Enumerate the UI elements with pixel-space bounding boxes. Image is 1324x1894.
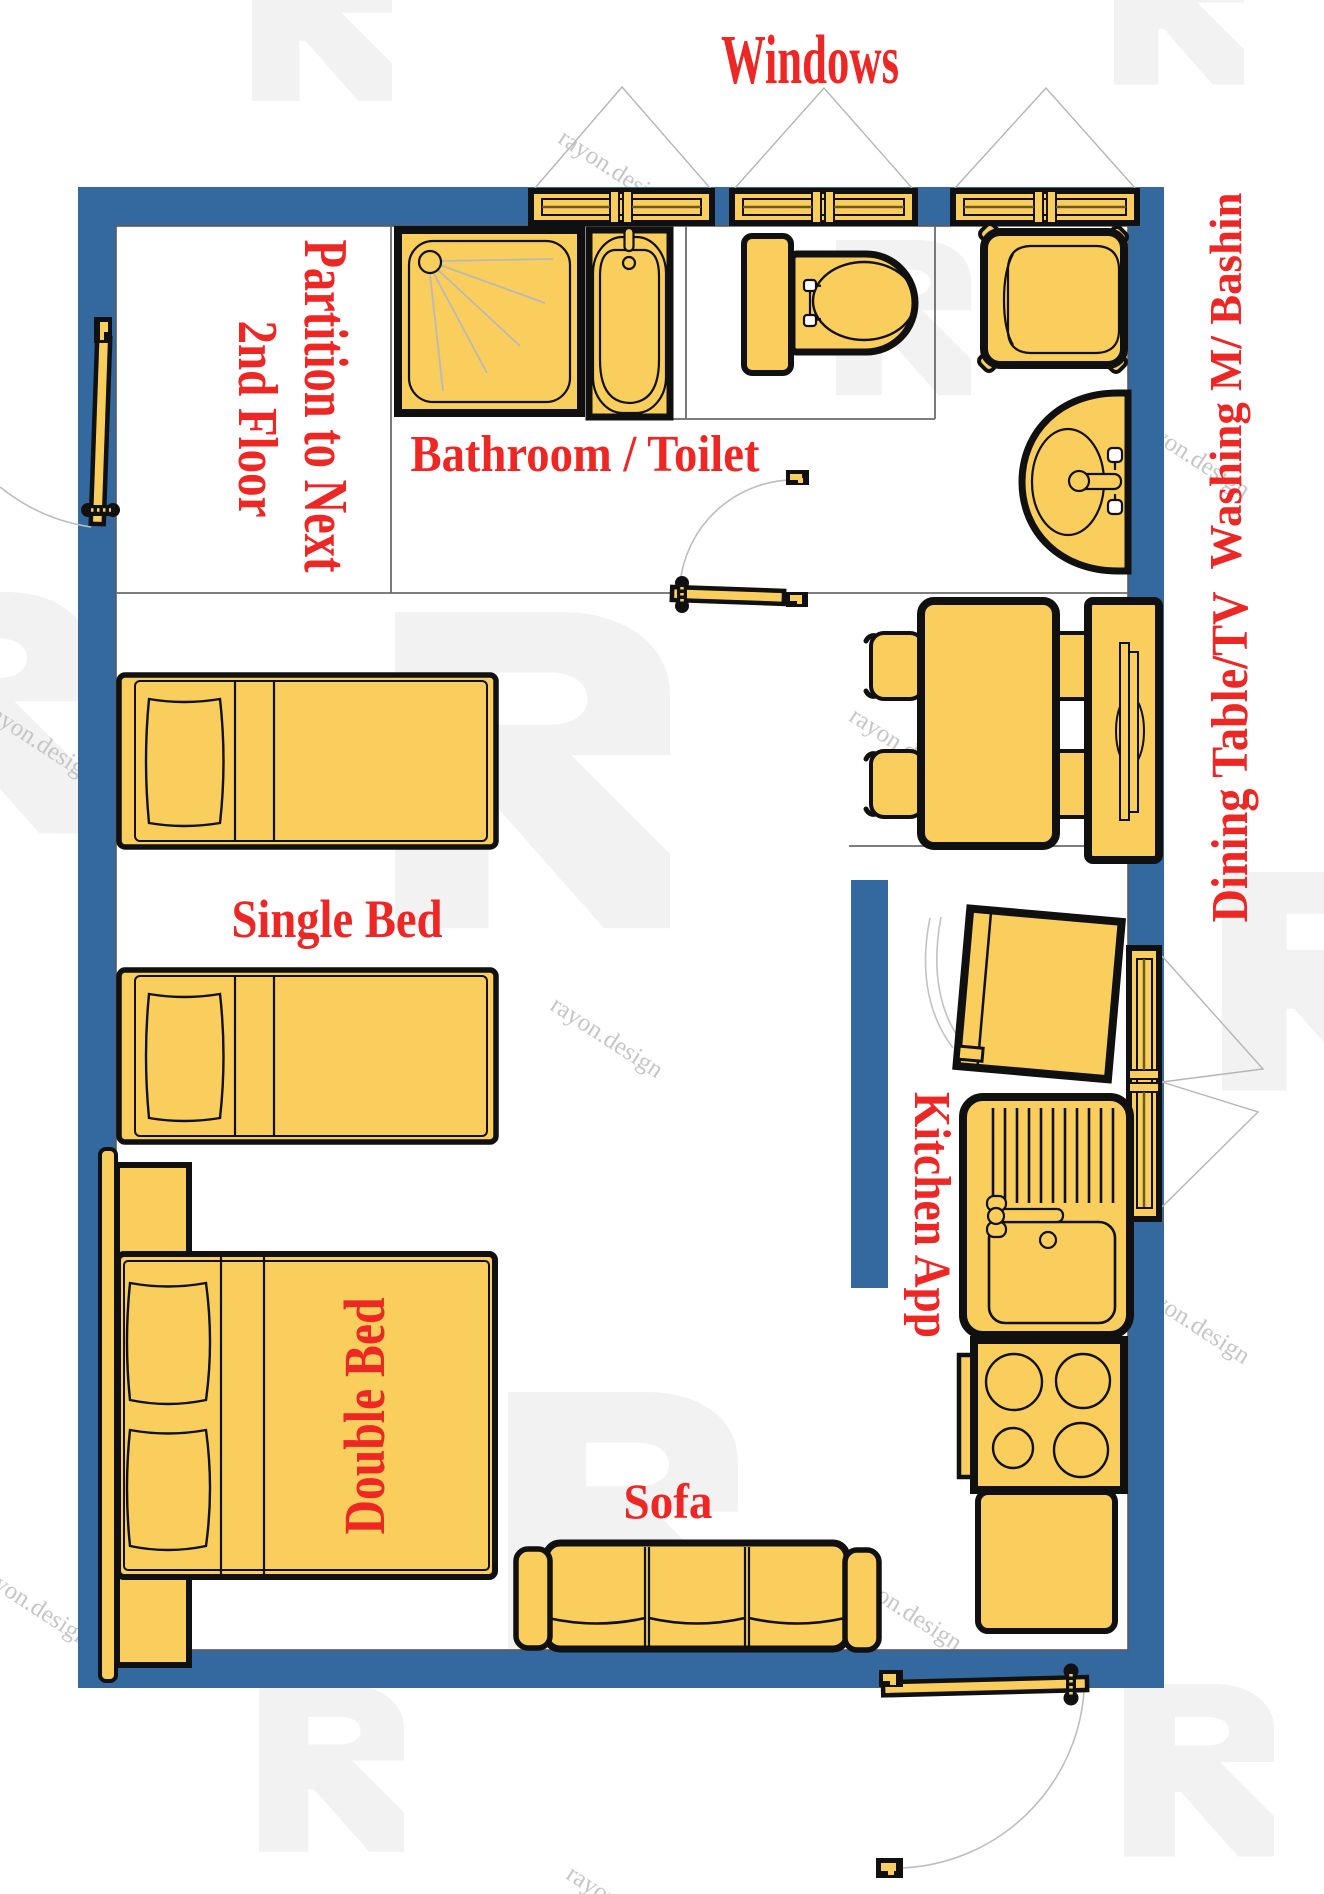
svg-text:Kitchen App: Kitchen App [903,1092,960,1338]
svg-text:Bathroom / Toilet: Bathroom / Toilet [411,426,761,483]
svg-text:Windows: Windows [721,22,899,99]
svg-text:Single Bed: Single Bed [232,889,443,949]
svg-text:Double Bed: Double Bed [332,1298,397,1535]
svg-text:Sofa: Sofa [624,1473,713,1529]
svg-text:Washing M/ Bashin: Washing M/ Bashin [1200,193,1251,570]
svg-text:2nd Floor: 2nd Floor [226,321,288,518]
svg-text:Partition to Next: Partition to Next [291,240,359,573]
svg-text:Dining Table/TV: Dining Table/TV [1202,592,1259,923]
